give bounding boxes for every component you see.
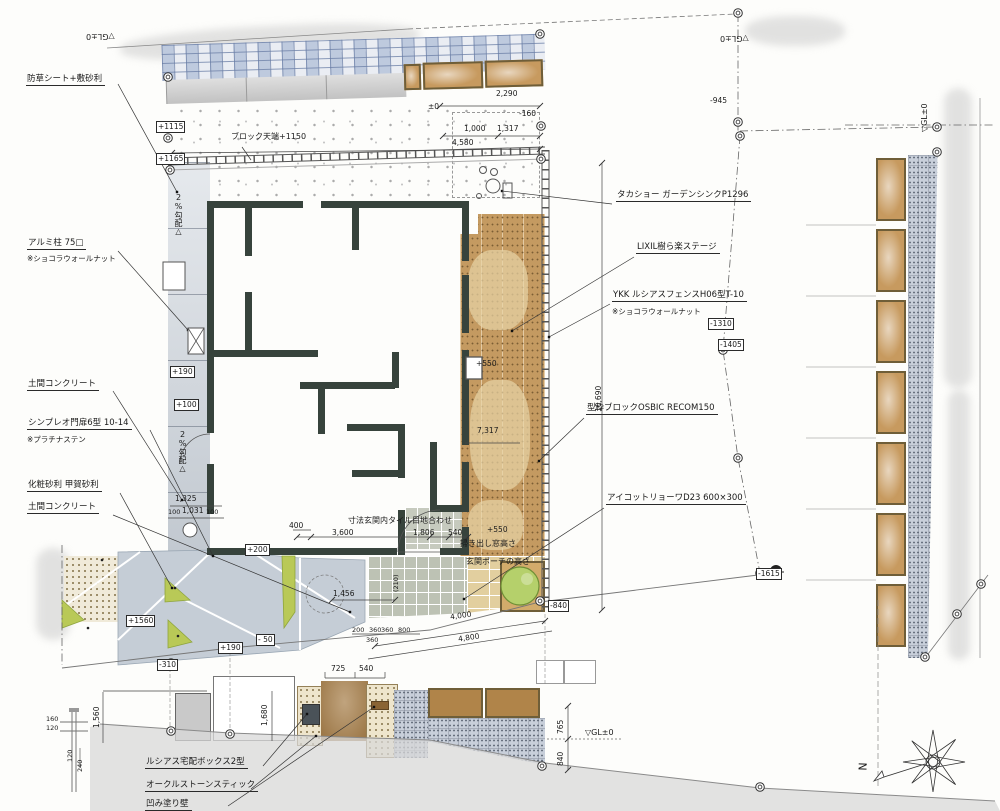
slope-label-lower: 2%勾配△ (177, 430, 188, 473)
dim-1325: 1,325 (175, 494, 196, 503)
dim-1680: 1,680 (260, 705, 269, 726)
dim-840: 840 (556, 752, 565, 766)
dim-765: 765 (556, 720, 565, 734)
dim-540a: 540 (448, 528, 462, 537)
level-minus945: -945 (710, 96, 727, 105)
annotation-tile-product: アイコットリョーワD23 600×300 (606, 493, 746, 505)
dim-400: 400 (289, 521, 303, 530)
dim-1560: 1,560 (92, 707, 101, 728)
annotation-doma-concrete-2: 土間コンクリート (27, 502, 99, 514)
level-190b: +190 (218, 642, 243, 654)
dim-1317: 1,317 (497, 124, 518, 133)
annotation-block-top: ブロック天端+1150 (231, 132, 306, 142)
level-minus1405: -1405 (718, 339, 744, 351)
level-minus160: -160 (519, 109, 536, 118)
north-arrow-letter: N (855, 762, 868, 771)
level-minus310: -310 (157, 659, 178, 671)
site-plan-sheet: 防草シート+敷砂利 アルミ柱 75□ ※ショコラウォールナット 土間コンクリート… (0, 0, 1000, 811)
dim-1456: 1,456 (333, 589, 354, 598)
dim-540b: 540 (359, 664, 373, 673)
gl-mark-right-elevation: ▽GL±0 (920, 103, 929, 132)
annotation-gate-note: ※プラチナステン (27, 434, 86, 445)
annotation-deco-gravel: 化粧砂利 甲賀砂利 (27, 480, 102, 492)
dim-1000: 1,000 (464, 124, 485, 133)
annotation-window-height: 掃き出し窓高さ (460, 539, 516, 549)
dim-210: (210) (392, 575, 400, 592)
level-minus1310: -1310 (708, 318, 734, 330)
dim-3600: 3,600 (332, 528, 353, 537)
annotation-gate: シンプレオ門扉6型 10-14 (27, 418, 132, 430)
level-550a: +550 (476, 359, 497, 368)
dim-10690: 10,690 (594, 386, 603, 412)
dim-4580: 4,580 (452, 138, 473, 147)
dim-100b: 100 (206, 508, 218, 516)
annotation-alumi-post: アルミ柱 75□ (27, 238, 86, 250)
annotation-recessed-wall: 凹み塗り壁 (145, 799, 192, 811)
dim-100a: 100 (168, 508, 180, 516)
level-200: +200 (245, 544, 270, 556)
level-190a: +190 (170, 366, 195, 378)
level-1165: +1165 (156, 153, 185, 165)
level-1560: +1560 (126, 615, 155, 627)
gl-mark-section: ▽GL±0 (585, 728, 614, 737)
annotation-doma-concrete-1: 土間コンクリート (27, 379, 99, 391)
annotation-garden-sink: タカショー ガーデンシンクP1296 (616, 190, 751, 202)
annotation-weed-sheet: 防草シート+敷砂利 (26, 74, 105, 86)
dim-120b: 120 (66, 750, 74, 762)
annotation-porch-height: 玄関ポーチの高さ (466, 557, 530, 567)
level-550b: +550 (487, 525, 508, 534)
dim-160: 160 (46, 715, 58, 723)
level-minus840: -840 (548, 600, 569, 612)
annotation-deck-lixil: LIXIL樹ら楽ステージ (636, 242, 720, 254)
annotation-ykk-fence: YKK ルシアスフェンスH06型T-10 (612, 290, 747, 302)
level-pm0: ±0 (428, 102, 439, 111)
annotation-ykk-fence-note: ※ショコラウォールナット (612, 306, 701, 317)
dim-725: 725 (331, 664, 345, 673)
dim-1031: 1,031 (182, 506, 203, 515)
gl-mark-top-left: ▽GL±0 (86, 32, 115, 41)
annotation-delivery-box: ルシアス宅配ボックス2型 (145, 757, 248, 769)
dim-360c: 360 (366, 636, 378, 644)
level-100: +100 (174, 399, 199, 411)
slope-label-upper: 2%勾配△ (173, 193, 184, 236)
dim-360b: 360 (381, 626, 393, 634)
gl-mark-top-right: ▽GL±0 (720, 34, 749, 43)
annotation-stone-stick: オークルストーンスティック (145, 780, 258, 792)
dim-200: 200 (352, 626, 364, 634)
dim-800: 800 (398, 626, 410, 634)
level-minus50: - 50 (256, 634, 275, 646)
dim-240: 240 (76, 760, 84, 772)
annotation-alumi-post-note: ※ショコラウォールナット (27, 253, 116, 264)
dim-7317: 7,317 (477, 426, 498, 435)
level-1115: +1115 (156, 121, 185, 133)
drawing-linework (0, 0, 1000, 811)
dim-1806: 1,806 (413, 528, 434, 537)
dim-120a: 120 (46, 724, 58, 732)
annotation-form-block: 型枠ブロックOSBIC RECOM150 (586, 403, 718, 415)
dim-360a: 360 (369, 626, 381, 634)
annotation-tile-align: 寸法玄関内タイル目地合わせ (348, 516, 452, 526)
dim-2290: 2,290 (496, 89, 517, 98)
level-minus1615: -1615 (756, 568, 782, 580)
